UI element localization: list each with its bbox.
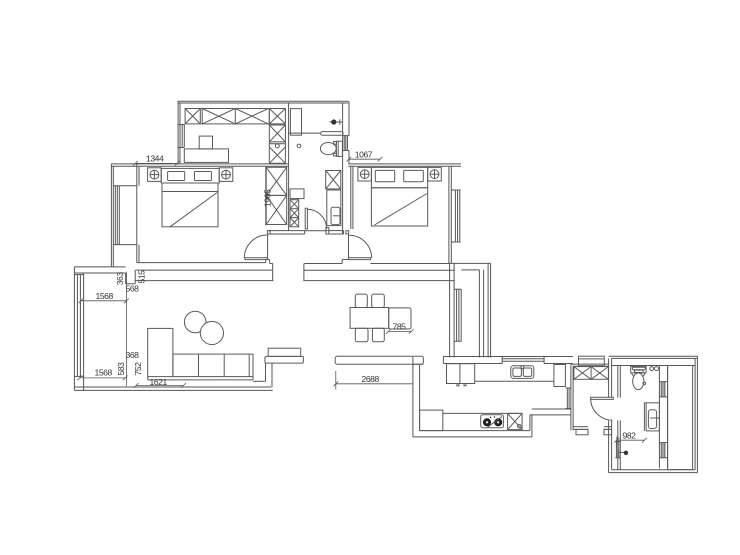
svg-text:1621: 1621 <box>150 377 168 387</box>
svg-text:1067: 1067 <box>355 150 373 160</box>
svg-text:515: 515 <box>137 270 147 284</box>
svg-text:1568: 1568 <box>96 291 114 301</box>
svg-text:368: 368 <box>126 350 140 360</box>
svg-text:363: 363 <box>115 272 125 286</box>
svg-text:752: 752 <box>133 362 143 376</box>
svg-text:2688: 2688 <box>362 374 380 384</box>
svg-text:982: 982 <box>623 431 637 441</box>
svg-text:785: 785 <box>393 322 407 332</box>
svg-text:568: 568 <box>126 283 140 293</box>
svg-text:583: 583 <box>116 362 126 376</box>
svg-text:1568: 1568 <box>95 368 113 378</box>
svg-text:1965: 1965 <box>263 189 273 207</box>
svg-text:1344: 1344 <box>146 154 164 164</box>
